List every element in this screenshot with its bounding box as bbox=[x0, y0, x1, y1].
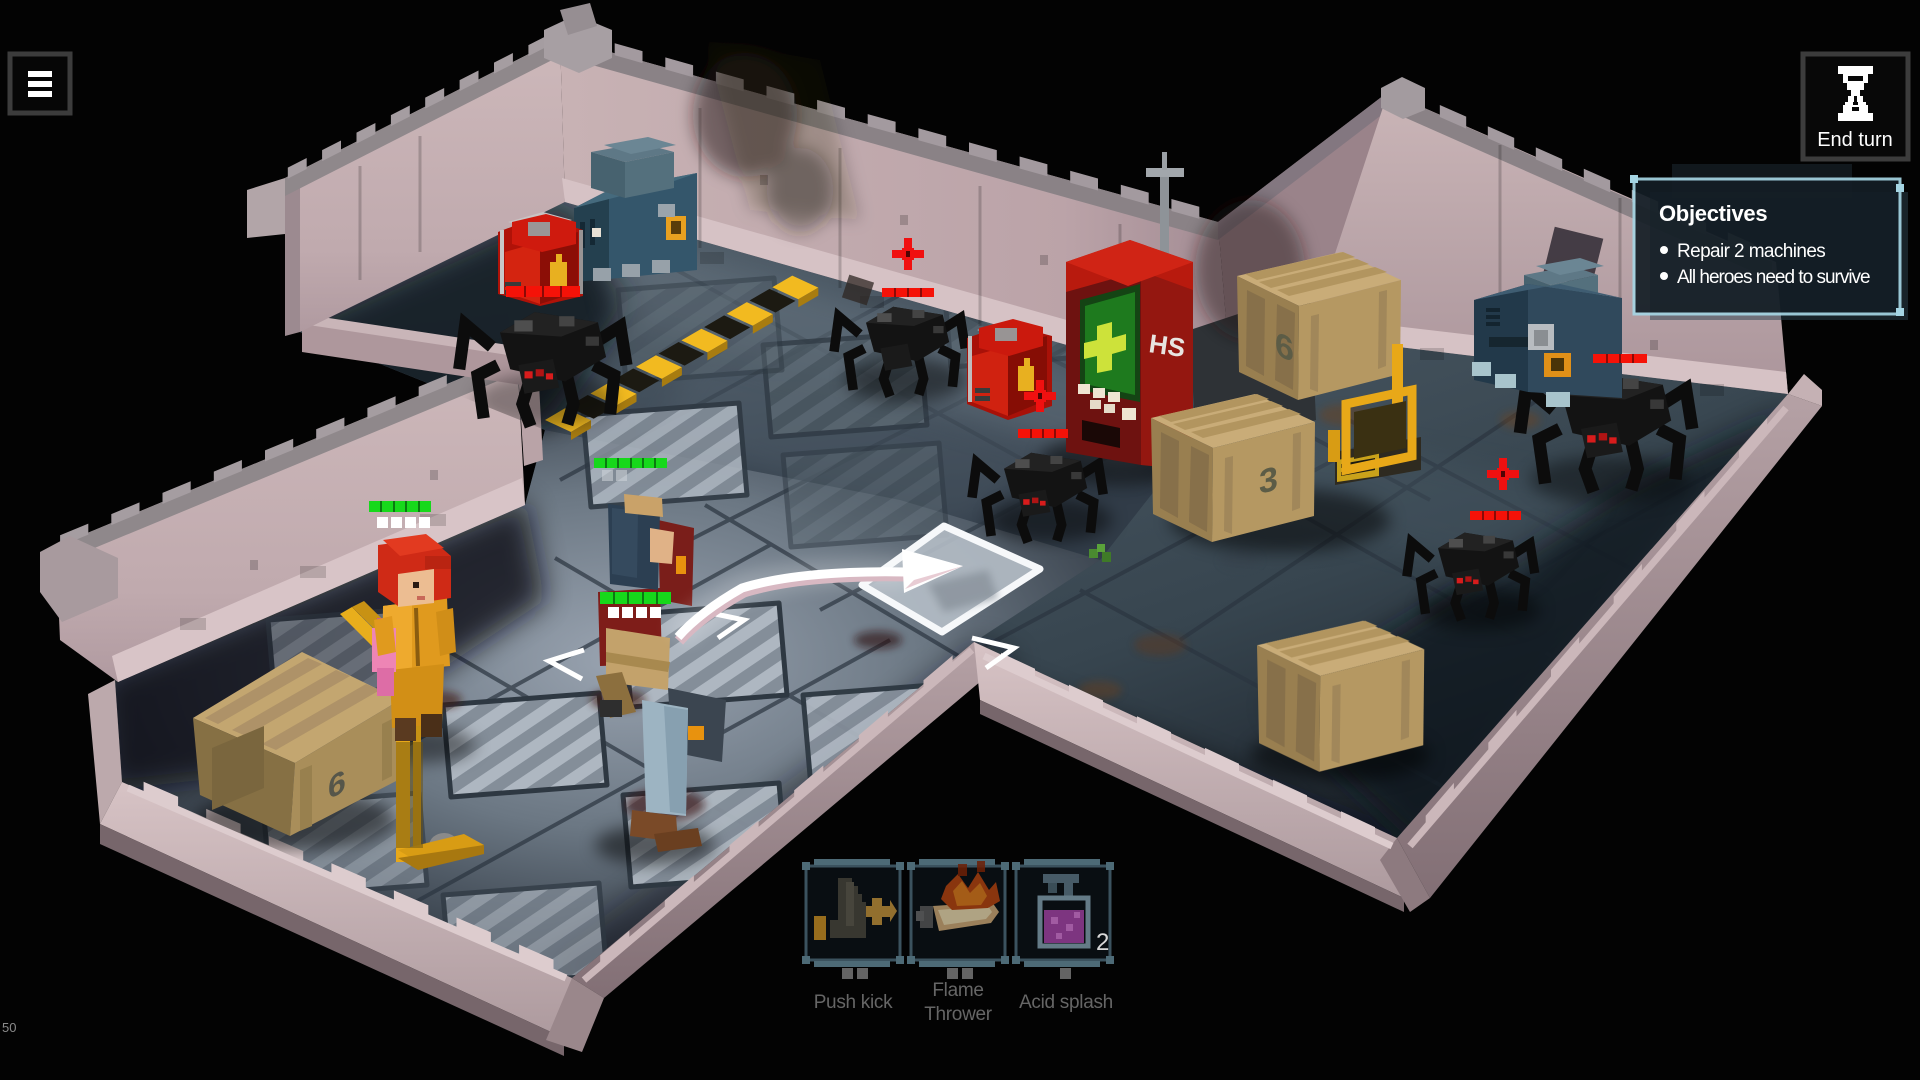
svg-text:Acid splash: Acid splash bbox=[1019, 992, 1113, 1013]
svg-text:End turn: End turn bbox=[1817, 129, 1893, 151]
svg-text:Objectives: Objectives bbox=[1659, 201, 1767, 226]
svg-text:Push kick: Push kick bbox=[814, 992, 893, 1013]
svg-text:2: 2 bbox=[1096, 929, 1109, 956]
svg-text:3: 3 bbox=[1259, 460, 1278, 502]
svg-text:50: 50 bbox=[2, 1020, 16, 1035]
svg-text:Flame: Flame bbox=[932, 980, 983, 1001]
svg-text:Repair 2 machines: Repair 2 machines bbox=[1677, 241, 1825, 262]
svg-text:All heroes need to survive: All heroes need to survive bbox=[1677, 267, 1870, 288]
svg-text:HS: HS bbox=[1147, 328, 1187, 363]
svg-text:Thrower: Thrower bbox=[924, 1004, 993, 1025]
